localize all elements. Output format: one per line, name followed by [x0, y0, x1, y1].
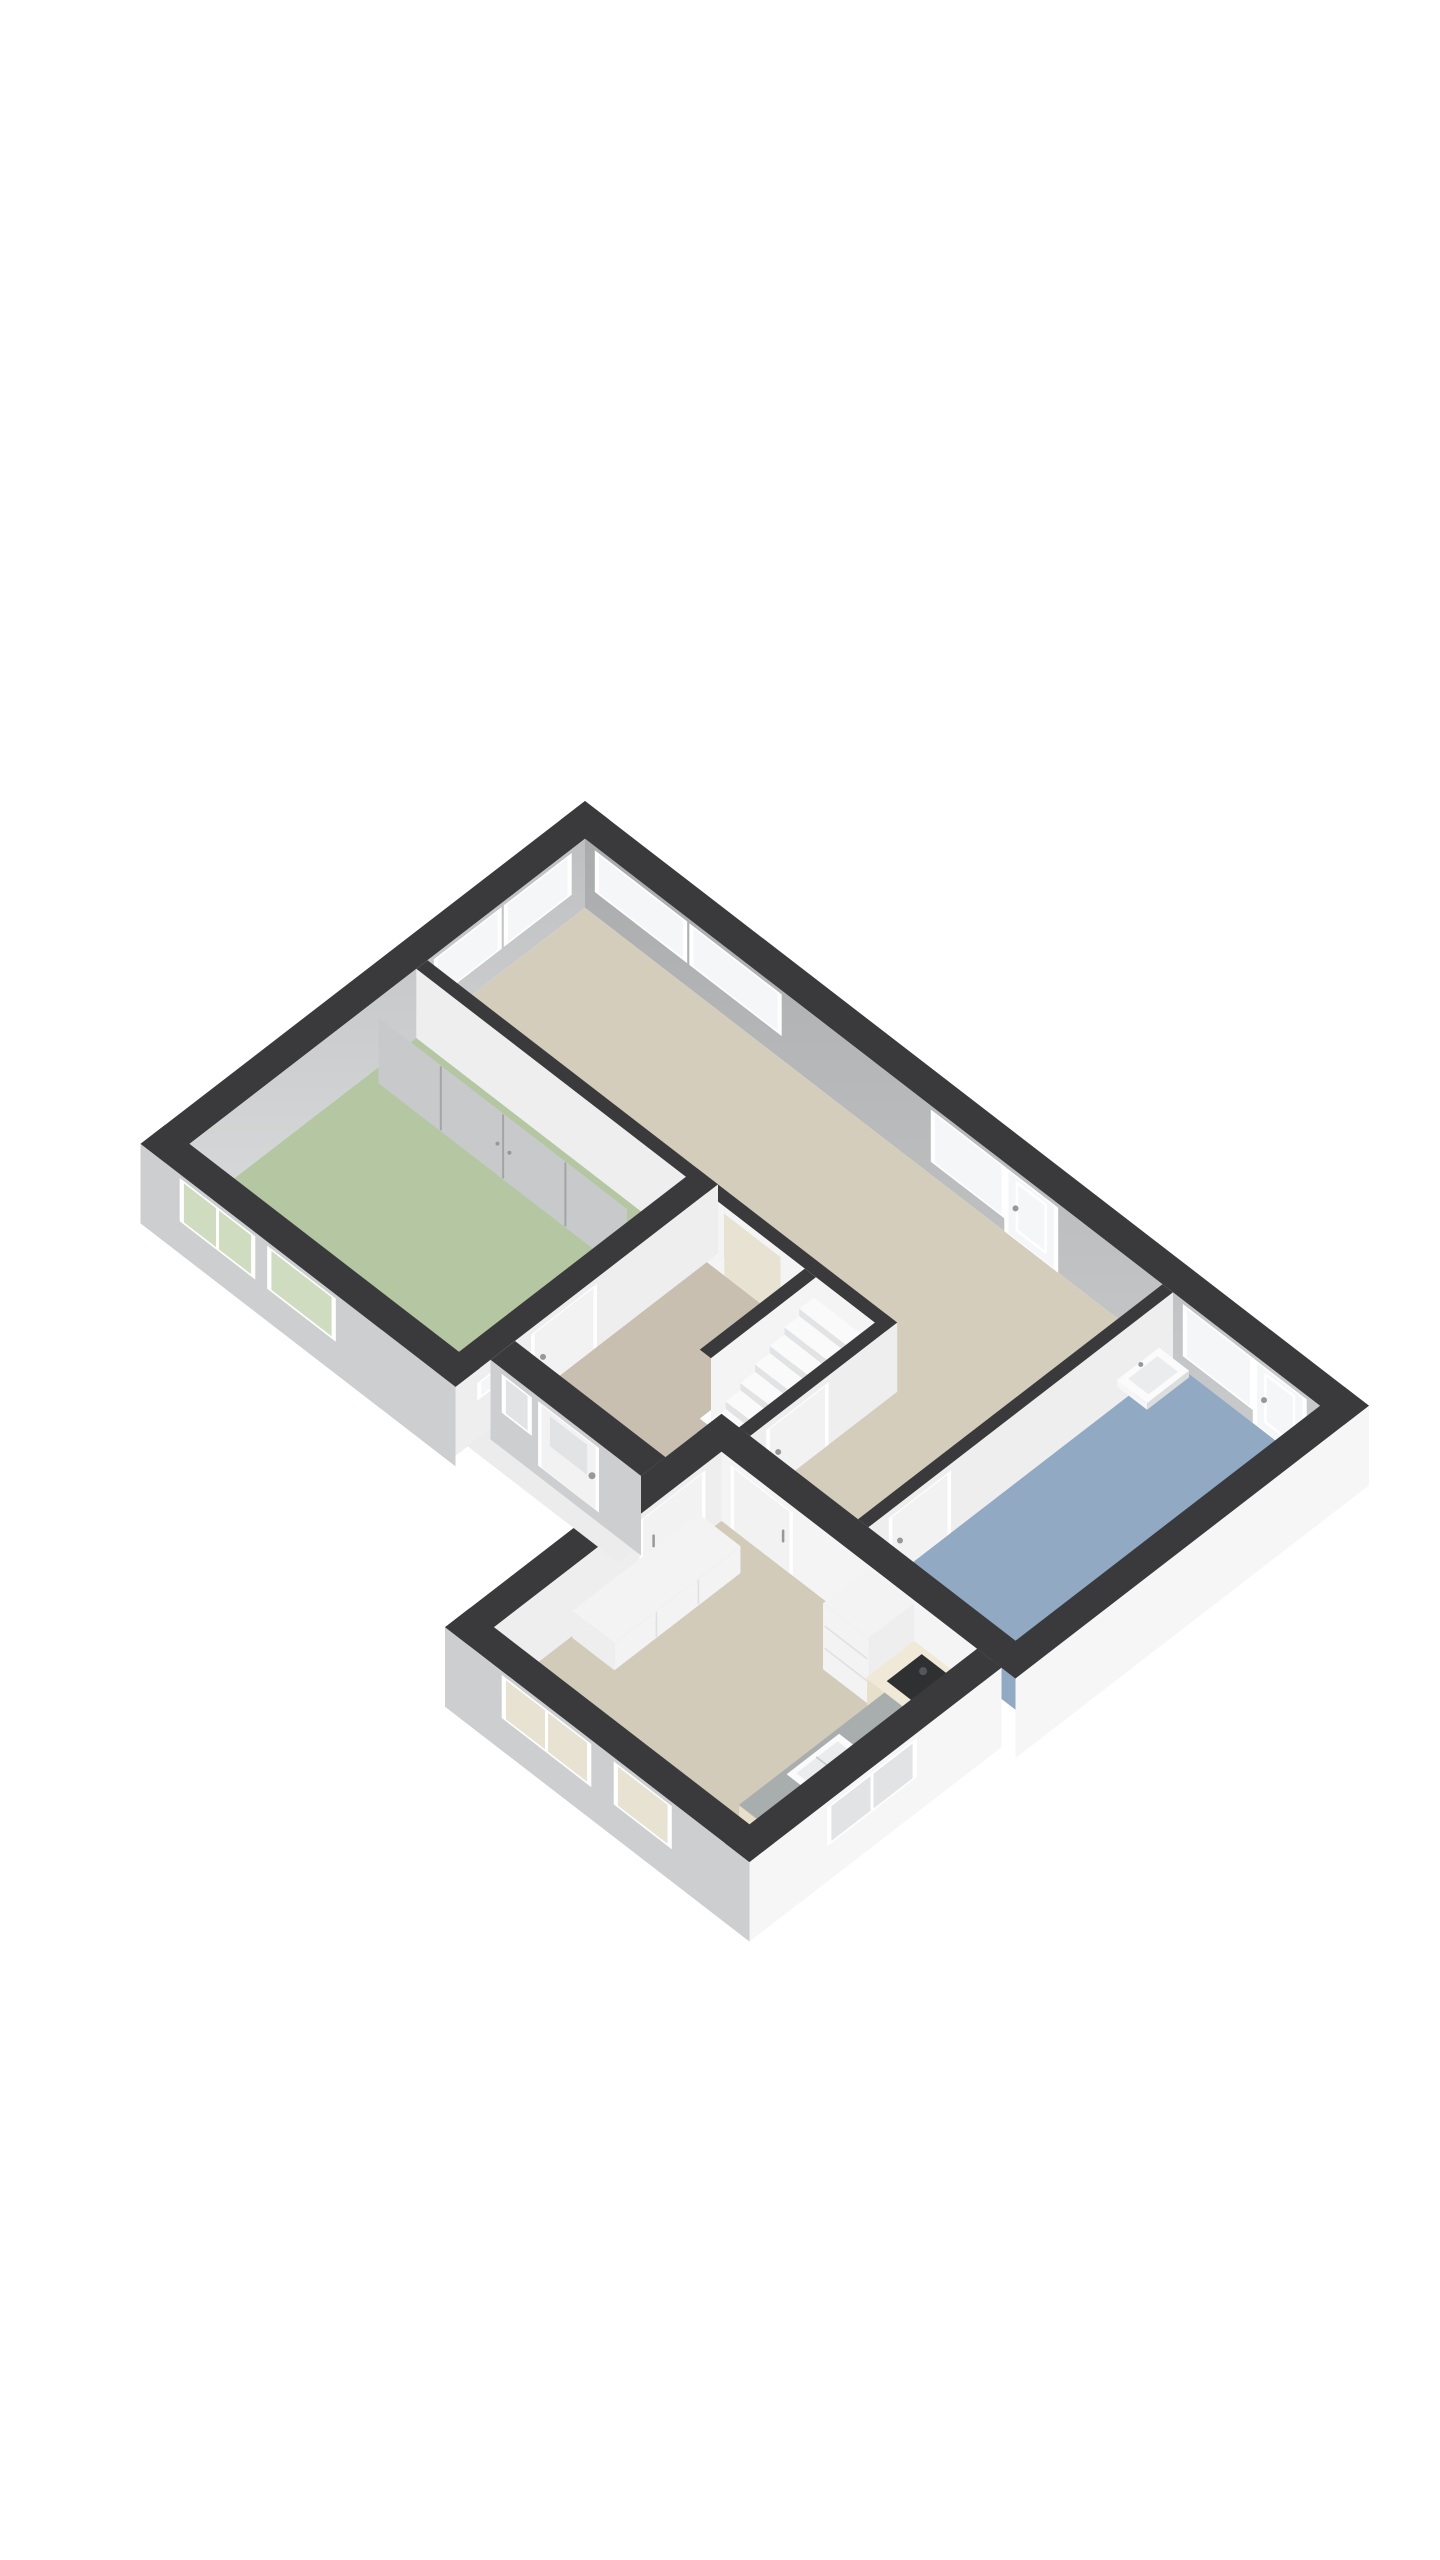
wardrobe-door-handle-2 [507, 1151, 511, 1155]
sink-faucet [1138, 1362, 1143, 1367]
bathroom-glass-door-handle [1261, 1397, 1267, 1403]
front-door-handle [589, 1472, 596, 1479]
cooktop-burner-1 [919, 1667, 927, 1675]
floorplan-canvas [0, 0, 1440, 2560]
floorplan-3d-rendering [0, 0, 1440, 2560]
understairs-door-handle [775, 1449, 781, 1455]
bedroom-door-handle [540, 1354, 546, 1360]
bathroom-door-handle [897, 1538, 903, 1544]
living-glass-door-handle [1013, 1205, 1019, 1211]
wardrobe-door-handle-1 [496, 1142, 500, 1146]
